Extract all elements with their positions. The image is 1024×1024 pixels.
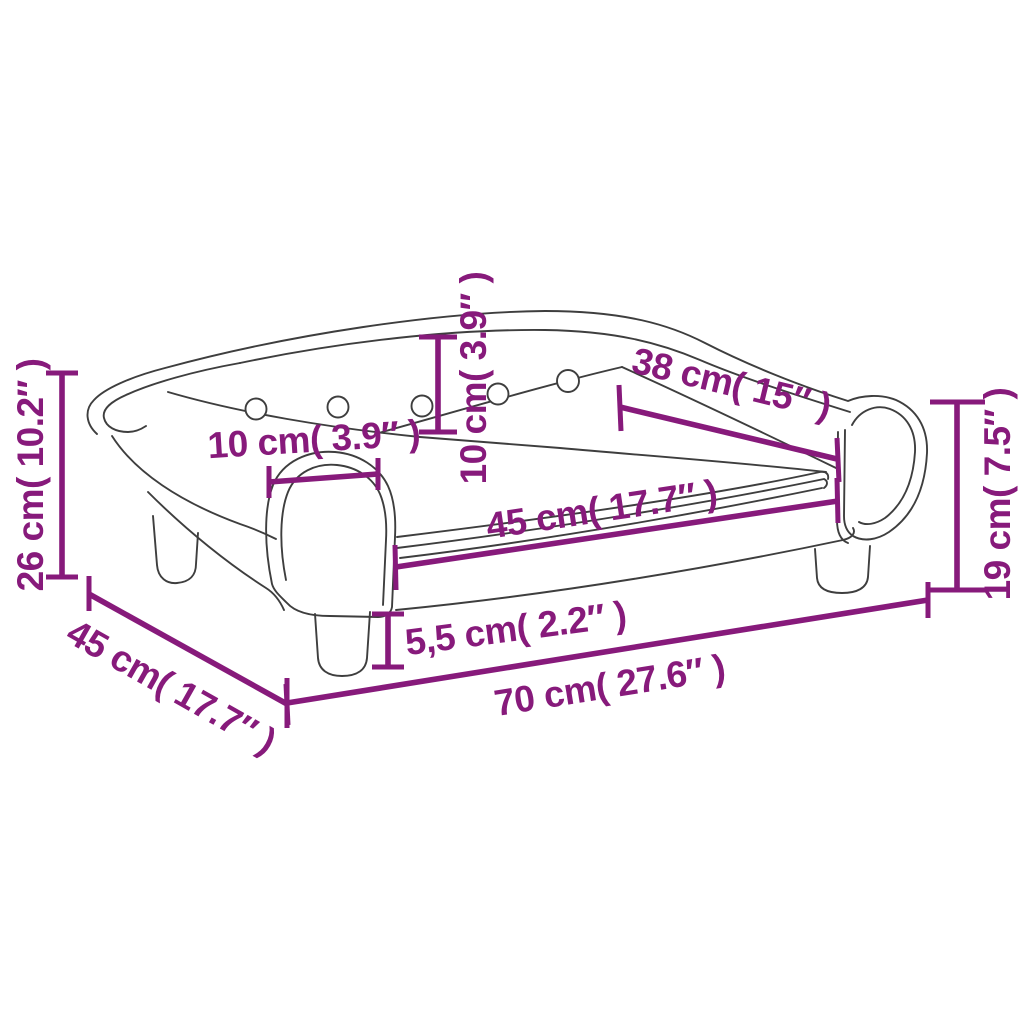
dim-armrest-width-line [269,474,378,482]
diagram-canvas: 26 cm( 10.2″ ) 10 cm( 3.9″ ) 10 cm( 3.9″… [0,0,1024,1024]
dim-overall-depth-tick-right [286,684,288,725]
sofa-left-arm-inner [281,465,386,605]
dim-armrest-width-label: 10 cm( 3.9″ ) [206,412,421,466]
dim-seat-width-tick-left [395,545,396,590]
sofa-left-side-bottom [148,492,284,610]
sofa-leg-back-left [153,516,198,583]
dim-overall-depth-label: 45 cm( 17.7″ ) [60,611,283,761]
sofa-right-arm-inner [852,407,915,524]
sofa-button-2 [328,397,349,418]
dimension-diagram: 26 cm( 10.2″ ) 10 cm( 3.9″ ) 10 cm( 3.9″… [0,0,1024,1024]
dim-armrest-height-label: 19 cm( 7.5″ ) [977,388,1018,601]
dim-backrest-length-tick-right [837,438,839,482]
dim-backrest-thickness-label: 10 cm( 3.9″ ) [453,272,494,485]
dim-backrest-length: 38 cm( 15″ ) [619,340,839,482]
dim-overall-depth: 45 cm( 17.7″ ) [60,576,288,762]
dim-armrest-height: 19 cm( 7.5″ ) [930,388,1018,601]
sofa-button-1 [246,399,267,420]
dim-overall-width-label: 70 cm( 27.6″ ) [491,647,727,724]
sofa-leg-front-right [815,546,870,593]
sofa-button-5 [557,370,579,392]
sofa-leg-front-left [315,612,370,676]
dim-armrest-width: 10 cm( 3.9″ ) [206,412,421,498]
sofa-horn-inner-fold [104,363,240,432]
dim-backrest-thickness: 10 cm( 3.9″ ) [419,272,494,485]
dim-backrest-length-tick-left [619,385,621,431]
dimension-annotations: 26 cm( 10.2″ ) 10 cm( 3.9″ ) 10 cm( 3.9″… [10,272,1018,762]
sofa-base-bottom-edge [396,528,854,610]
dim-back-height-label: 26 cm( 10.2″ ) [10,359,51,592]
dim-back-height: 26 cm( 10.2″ ) [10,359,78,592]
dim-seat-width-tick-right [837,478,838,523]
